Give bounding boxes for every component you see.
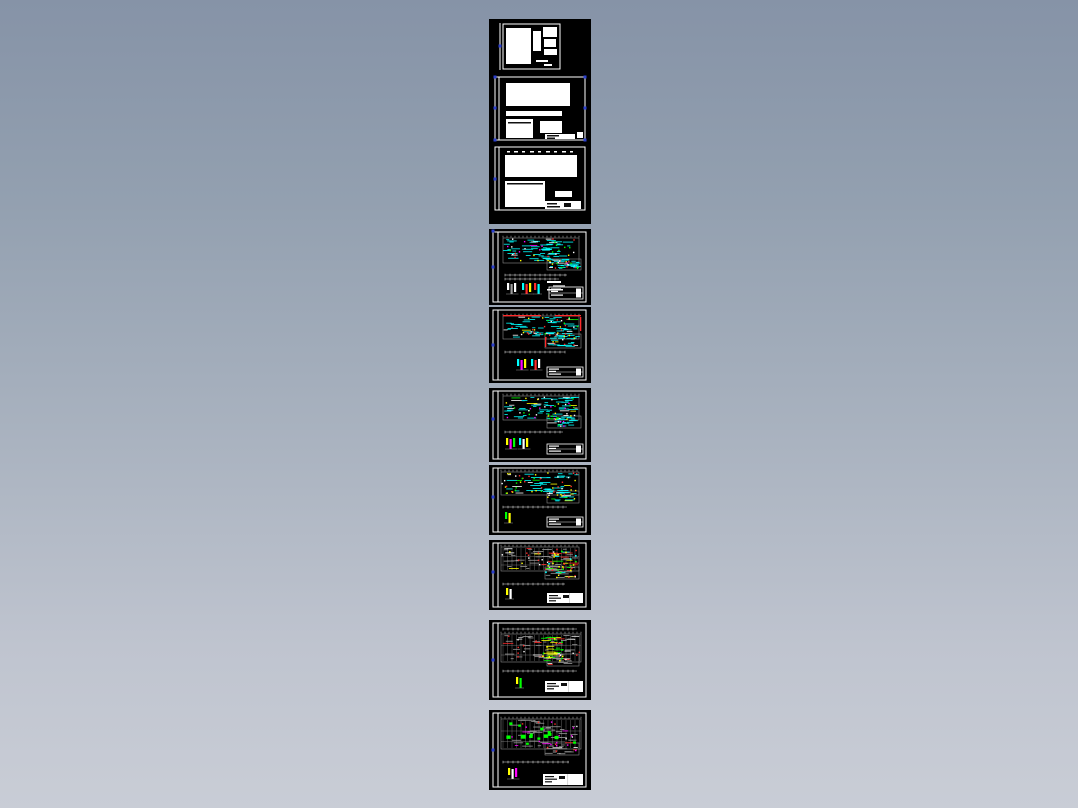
floor-plan-sheet-2 <box>492 310 587 380</box>
floor-plan-sheet-4 <box>492 468 587 532</box>
title-block <box>543 774 583 785</box>
floor-plan-sheet-7 <box>492 713 587 787</box>
grip-point <box>584 139 587 142</box>
drawing-tile-3 <box>489 307 591 383</box>
plan-linework <box>501 470 579 509</box>
grip-point <box>494 178 497 181</box>
tile-7-svg <box>489 620 591 700</box>
grip-point <box>494 139 497 142</box>
grip-point <box>492 230 495 233</box>
drawing-tile-5 <box>489 465 591 535</box>
sheet-frame <box>493 310 586 380</box>
drawing-tile-6 <box>489 540 591 610</box>
grip-point <box>584 107 587 110</box>
title-block <box>549 287 583 299</box>
detail-figures <box>505 438 531 449</box>
tile-4-svg <box>489 388 591 462</box>
drawing-tile-1 <box>489 19 591 224</box>
tile-2-svg <box>489 229 591 305</box>
detail-figures <box>515 677 524 688</box>
drawing-tile-2 <box>489 229 591 305</box>
drawing-tile-4 <box>489 388 591 462</box>
drawing-tile-8 <box>489 710 591 790</box>
grip-point <box>492 571 495 574</box>
drawing-tile-7 <box>489 620 591 700</box>
title-block <box>547 517 583 527</box>
grip-point <box>494 107 497 110</box>
grip-point <box>492 266 495 269</box>
cad-preview-background <box>0 0 1078 808</box>
detail-figures <box>504 512 513 523</box>
title-block <box>545 681 583 692</box>
plan-linework <box>503 236 581 281</box>
title-block <box>547 593 583 603</box>
grip-point <box>492 659 495 662</box>
floor-plan-sheet-6 <box>492 623 587 697</box>
document-text-blocks <box>505 151 581 209</box>
document-text-blocks <box>506 83 583 139</box>
plan-linework <box>501 628 581 673</box>
detail-figures <box>507 768 520 779</box>
detail-figures <box>505 588 514 599</box>
grip-point <box>499 45 502 48</box>
document-sheet-1 <box>499 23 561 70</box>
tile-6-svg <box>489 540 591 610</box>
document-sheet-2 <box>494 76 587 142</box>
title-block <box>547 444 583 454</box>
detail-figures <box>506 283 542 294</box>
plan-linework <box>501 717 581 764</box>
tile-8-svg <box>489 710 591 790</box>
grip-point <box>492 749 495 752</box>
grip-point <box>492 418 495 421</box>
grip-point <box>494 76 497 79</box>
document-text-blocks <box>506 27 557 66</box>
plan-linework <box>503 314 581 354</box>
tile-3-svg <box>489 307 591 383</box>
grip-point <box>492 344 495 347</box>
tile-1-svg <box>489 19 591 224</box>
plan-linework <box>503 394 581 434</box>
floor-plan-sheet-3 <box>492 391 587 459</box>
floor-plan-sheet-5 <box>492 543 587 607</box>
document-sheet-3 <box>494 147 586 210</box>
floor-plan-sheet-1 <box>492 230 587 303</box>
tile-5-svg <box>489 465 591 535</box>
title-block <box>547 367 583 377</box>
plan-linework <box>501 545 579 586</box>
grip-point <box>492 496 495 499</box>
detail-figures <box>516 359 543 370</box>
grip-point <box>584 76 587 79</box>
